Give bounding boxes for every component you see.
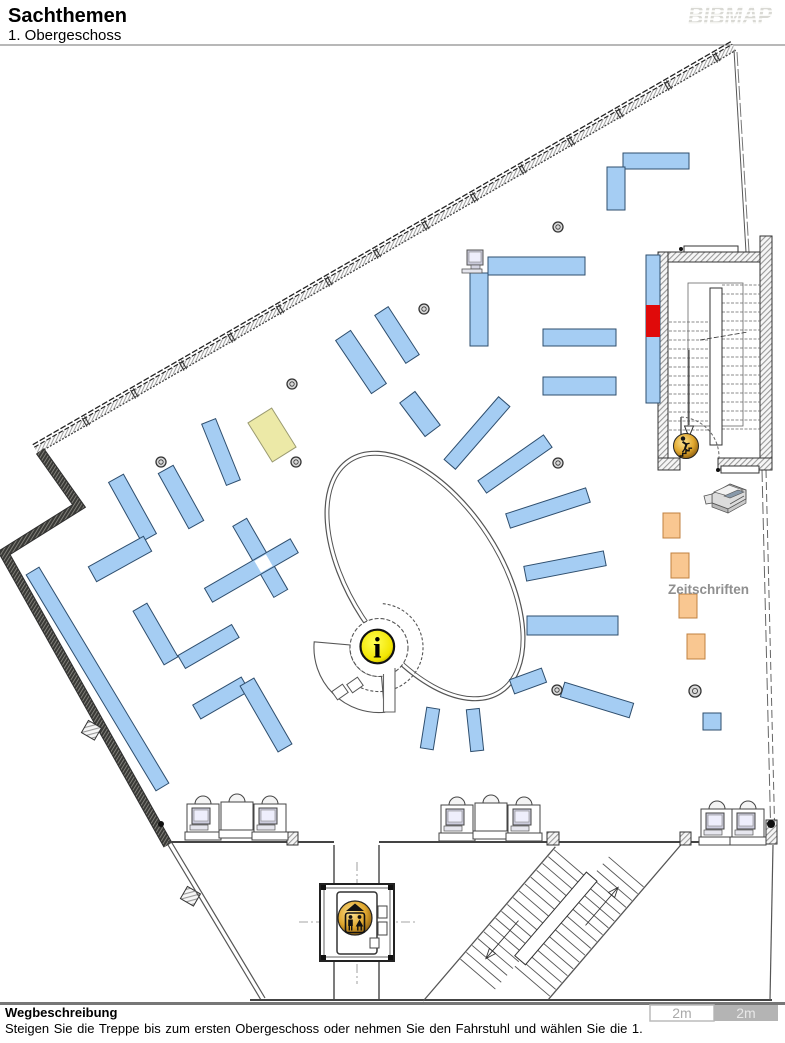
svg-text:i: i	[373, 632, 381, 665]
svg-text:2m: 2m	[672, 1005, 691, 1021]
svg-text:1. Obergeschoss: 1. Obergeschoss	[8, 27, 121, 44]
svg-text:Wegbeschreibung: Wegbeschreibung	[5, 1005, 118, 1020]
svg-text:Steigen Sie die Treppe bis zum: Steigen Sie die Treppe bis zum ersten Ob…	[5, 1021, 643, 1036]
svg-text:BIBMAP: BIBMAP	[688, 2, 772, 30]
svg-text:Zeitschriften: Zeitschriften	[668, 582, 749, 597]
svg-text:2m: 2m	[736, 1005, 755, 1021]
svg-text:Sachthemen: Sachthemen	[8, 5, 127, 27]
